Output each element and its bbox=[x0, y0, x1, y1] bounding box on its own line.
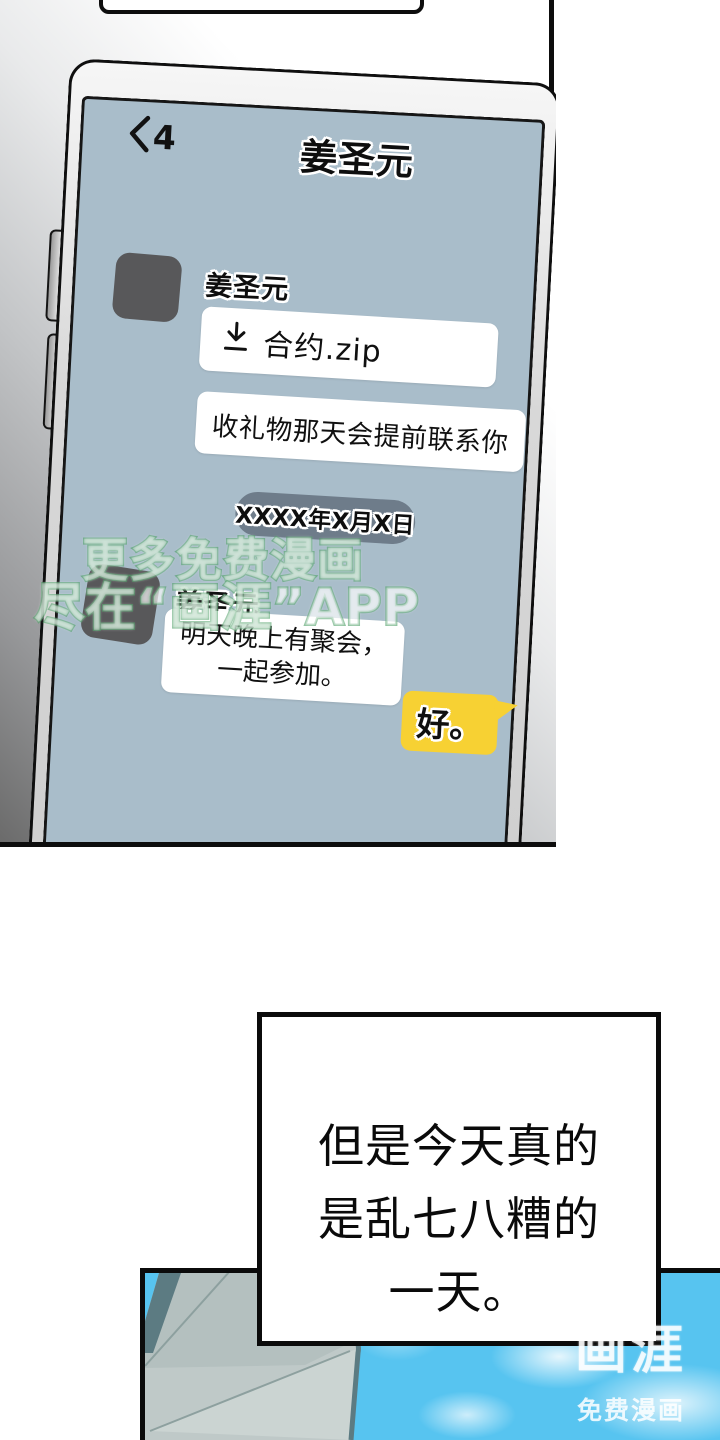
avatar bbox=[111, 252, 183, 324]
narration-line: 是乱七八糟的 bbox=[318, 1183, 600, 1256]
panel-chat-scene: 4 姜圣元 姜圣元 合约.zip 收礼物那天会提前联系你 bbox=[0, 0, 556, 847]
chat-title: 姜圣元 bbox=[246, 123, 469, 188]
back-button[interactable]: 4 bbox=[126, 113, 177, 160]
narration-line: 但是今天真的 bbox=[318, 1110, 600, 1183]
sender-name: 姜圣元 bbox=[204, 263, 290, 306]
chevron-left-icon bbox=[126, 113, 152, 158]
phone: 4 姜圣元 姜圣元 合约.zip 收礼物那天会提前联系你 bbox=[27, 58, 556, 847]
message-text: 收礼物那天会提前联系你 bbox=[211, 403, 510, 460]
previous-speech-bubble-remnant bbox=[99, 0, 424, 14]
message-text-line: 一起参加。 bbox=[216, 653, 348, 695]
unread-count: 4 bbox=[152, 117, 177, 157]
comic-page: 4 姜圣元 姜圣元 合约.zip 收礼物那天会提前联系你 bbox=[0, 0, 720, 1440]
reply-bubble: 好。 bbox=[400, 690, 499, 755]
message-bubble: 明天晚上有聚会， 一起参加。 bbox=[161, 608, 406, 706]
file-message-bubble[interactable]: 合约.zip bbox=[199, 306, 499, 388]
reply-text: 好。 bbox=[416, 697, 484, 748]
avatar bbox=[79, 562, 162, 646]
bubble-tail bbox=[493, 700, 518, 723]
message-bubble: 收礼物那天会提前联系你 bbox=[194, 391, 526, 472]
narration-line: 一天。 bbox=[389, 1256, 530, 1329]
narration-box: 但是今天真的 是乱七八糟的 一天。 bbox=[257, 1012, 661, 1346]
date-divider: XXXX年X月X日 bbox=[234, 491, 416, 546]
phone-body: 4 姜圣元 姜圣元 合约.zip 收礼物那天会提前联系你 bbox=[27, 58, 556, 847]
file-name: 合约.zip bbox=[262, 320, 383, 371]
chat-screen: 4 姜圣元 姜圣元 合约.zip 收礼物那天会提前联系你 bbox=[41, 96, 546, 847]
download-icon bbox=[221, 320, 250, 361]
